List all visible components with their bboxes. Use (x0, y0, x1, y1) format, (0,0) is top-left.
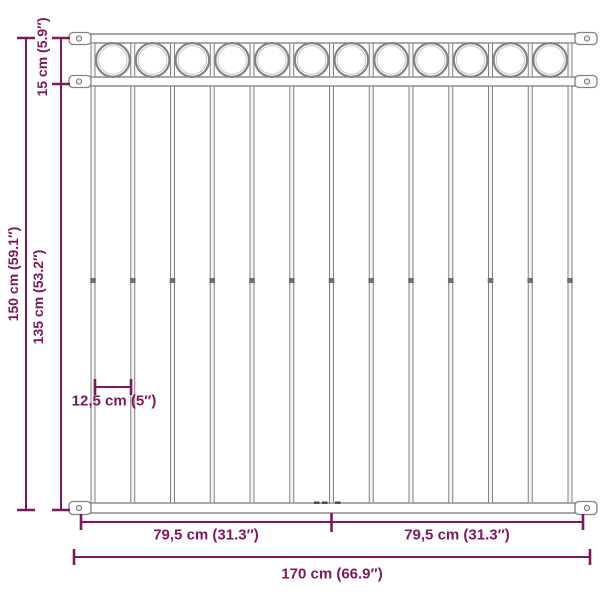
vertical-bar (449, 86, 453, 503)
bar-joint (448, 278, 454, 283)
dimension-lines (17, 38, 590, 565)
bar-joint (249, 278, 255, 283)
dim-half-width-right-label: 79,5 cm (31.3″) (404, 527, 510, 544)
vertical-bar (489, 86, 493, 503)
vertical-bar (290, 86, 294, 503)
ring-ornament (96, 43, 130, 77)
screw-icon (584, 505, 589, 510)
dim-half-width-left-label: 79,5 cm (31.3″) (153, 527, 259, 544)
bar-joint (90, 278, 96, 283)
vertical-bar-top-segment (210, 43, 214, 77)
ring-ornament (176, 43, 210, 77)
bar-joint (408, 278, 414, 283)
vertical-bar-top-segment (330, 43, 334, 77)
vertical-bar (131, 86, 135, 503)
vertical-bars (90, 43, 573, 503)
ring-ornament (374, 43, 408, 77)
vertical-bar (330, 86, 334, 503)
bar-joint (289, 278, 295, 283)
dim-total-height-label: 150 cm (59.1″) (5, 227, 21, 322)
bottom-rail-joint-marks (314, 502, 341, 505)
fence-panel (69, 33, 597, 515)
ring-ornament (533, 43, 567, 77)
vertical-bar (171, 86, 175, 503)
screw-icon (76, 505, 81, 510)
second-rail (86, 77, 586, 86)
joint-dash (335, 502, 341, 505)
vertical-bar-top-segment (409, 43, 413, 77)
bar-joint (170, 278, 176, 283)
vertical-bar (528, 86, 532, 503)
dimension-total-width (74, 549, 590, 565)
vertical-bar (409, 86, 413, 503)
ring-ornament (255, 43, 289, 77)
vertical-bar-top-segment (91, 43, 95, 77)
bottom-rail (86, 503, 586, 513)
screw-icon (584, 79, 589, 84)
screw-icon (584, 36, 589, 41)
ring-ornament (215, 43, 249, 77)
vertical-bar-top-segment (449, 43, 453, 77)
vertical-bar-top-segment (528, 43, 532, 77)
screw-icon (76, 79, 81, 84)
bar-joint (368, 278, 374, 283)
vertical-bar-top-segment (171, 43, 175, 77)
bar-joint (527, 278, 533, 283)
vertical-bar-top-segment (568, 43, 572, 77)
dim-bar-spacing-label: 12,5 cm (5″) (72, 393, 157, 410)
dim-top-section-height-label: 15 cm (5.9″) (34, 17, 50, 96)
vertical-bar-top-segment (489, 43, 493, 77)
ring-ornament (136, 43, 170, 77)
vertical-bar-top-segment (250, 43, 254, 77)
screw-icon (76, 36, 81, 41)
joint-dash (322, 502, 328, 505)
dim-total-width-label: 170 cm (66.9″) (281, 566, 382, 583)
vertical-bar (250, 86, 254, 503)
vertical-bar (369, 86, 373, 503)
bar-joint (130, 278, 136, 283)
bar-joint (209, 278, 215, 283)
vertical-bar (568, 86, 572, 503)
fence-panel-drawing (0, 0, 600, 600)
joint-dash (314, 502, 320, 505)
bar-joint (567, 278, 573, 283)
bar-joint (329, 278, 335, 283)
vertical-bar (91, 86, 95, 503)
top-rail (86, 34, 586, 43)
dim-lower-height-label: 135 cm (53.2″) (30, 250, 46, 345)
dimension-lower-and-top-height (52, 38, 70, 510)
ring-ornament (494, 43, 528, 77)
vertical-bar-top-segment (290, 43, 294, 77)
vertical-bar-top-segment (369, 43, 373, 77)
rails (86, 34, 586, 513)
ring-ornament (295, 43, 329, 77)
bar-joint (488, 278, 494, 283)
vertical-bar-top-segment (131, 43, 135, 77)
ring-ornament (335, 43, 369, 77)
ring-ornament (454, 43, 488, 77)
vertical-bar (210, 86, 214, 503)
fence-dimension-diagram: 150 cm (59.1″) 135 cm (53.2″) 15 cm (5.9… (0, 0, 600, 600)
ring-ornament (414, 43, 448, 77)
